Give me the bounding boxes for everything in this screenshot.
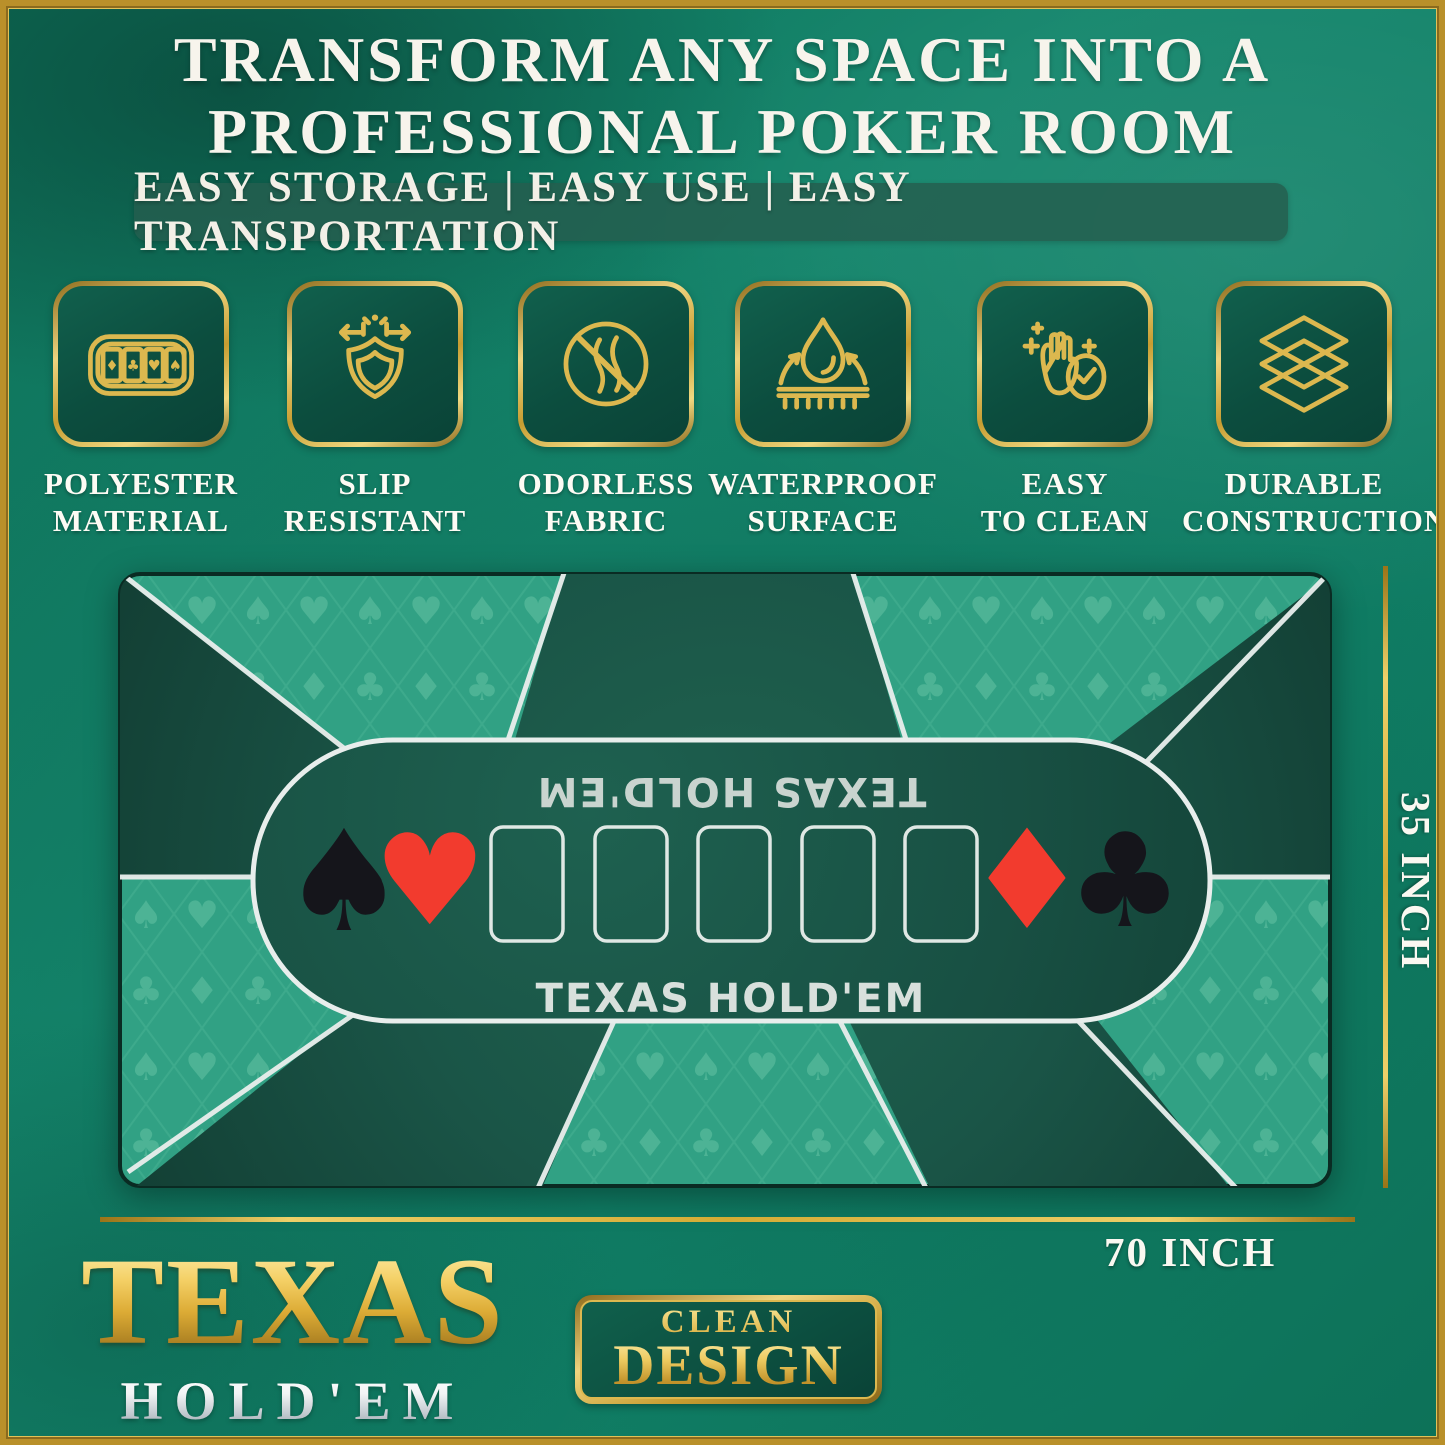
layers-icon: [1245, 305, 1363, 423]
title-line-1: TRANSFORM ANY SPACE INTO A: [0, 24, 1445, 96]
width-dimension-label: 70 INCH: [1104, 1228, 1276, 1276]
svg-text:♠: ♠: [169, 357, 182, 374]
width-dimension-line: [100, 1217, 1355, 1222]
mat-title: TEXAS HOLD'EM: [536, 976, 927, 1022]
svg-text:♦: ♦: [105, 357, 118, 374]
svg-text:♣: ♣: [126, 357, 139, 374]
feature-durable-construction: DURABLE CONSTRUCTION: [1182, 281, 1426, 539]
feature-label: EASY TO CLEAN: [943, 465, 1187, 539]
feature-easy-to-clean: EASY TO CLEAN: [943, 281, 1187, 539]
club-icon: ♣: [1067, 805, 1184, 957]
feature-waterproof-surface: WATERPROOF SURFACE: [701, 281, 945, 539]
feature-polyester-material: ♦ ♣ ♥ ♠ POLYESTER MATERIAL: [19, 281, 263, 539]
mat-title-mirrored: TEXAS HOLD'EM: [536, 768, 927, 814]
logo-subtitle: HOLD'EM: [55, 1370, 531, 1432]
feature-odorless-fabric: ODORLESS FABRIC: [484, 281, 728, 539]
poker-mat: ♠ ♥ ♣ ♦: [118, 572, 1332, 1188]
poker-mat-cards-icon: ♦ ♣ ♥ ♠: [82, 305, 200, 423]
height-dimension-label: 35 INCH: [1392, 792, 1440, 971]
feature-tile: [287, 281, 463, 447]
feature-tile: [1216, 281, 1392, 447]
poker-mat-image: ♠ ♥ ♣ ♦: [118, 572, 1332, 1188]
feature-label: SLIP RESISTANT: [253, 465, 497, 539]
benefits-banner-text: EASY STORAGE | EASY USE | EASY TRANSPORT…: [134, 163, 1288, 261]
feature-label: POLYESTER MATERIAL: [19, 465, 263, 539]
clean-design-badge: CLEAN DESIGN: [575, 1295, 882, 1404]
feature-slip-resistant: SLIP RESISTANT: [253, 281, 497, 539]
feature-label: ODORLESS FABRIC: [484, 465, 728, 539]
feature-label: DURABLE CONSTRUCTION: [1182, 465, 1426, 539]
no-odor-icon: [547, 305, 665, 423]
hand-sparkle-icon: [1006, 305, 1124, 423]
feature-label: WATERPROOF SURFACE: [701, 465, 945, 539]
badge-line-2: DESIGN: [613, 1339, 844, 1393]
poster-background: TRANSFORM ANY SPACE INTO A PROFESSIONAL …: [0, 0, 1445, 1445]
heart-icon: ♥: [374, 807, 487, 954]
feature-tile: [518, 281, 694, 447]
feature-tile: [735, 281, 911, 447]
height-dimension-line: [1383, 566, 1388, 1188]
page-title: TRANSFORM ANY SPACE INTO A PROFESSIONAL …: [0, 24, 1445, 168]
logo-title: TEXAS: [55, 1240, 531, 1364]
brand-logo: TEXAS HOLD'EM: [55, 1240, 531, 1432]
shield-arrows-icon: [316, 305, 434, 423]
svg-text:♥: ♥: [148, 357, 161, 374]
feature-tile: ♦ ♣ ♥ ♠: [53, 281, 229, 447]
feature-tile: [977, 281, 1153, 447]
title-line-2: PROFESSIONAL POKER ROOM: [0, 96, 1445, 168]
water-drop-icon: [764, 305, 882, 423]
benefits-banner: EASY STORAGE | EASY USE | EASY TRANSPORT…: [134, 183, 1288, 241]
